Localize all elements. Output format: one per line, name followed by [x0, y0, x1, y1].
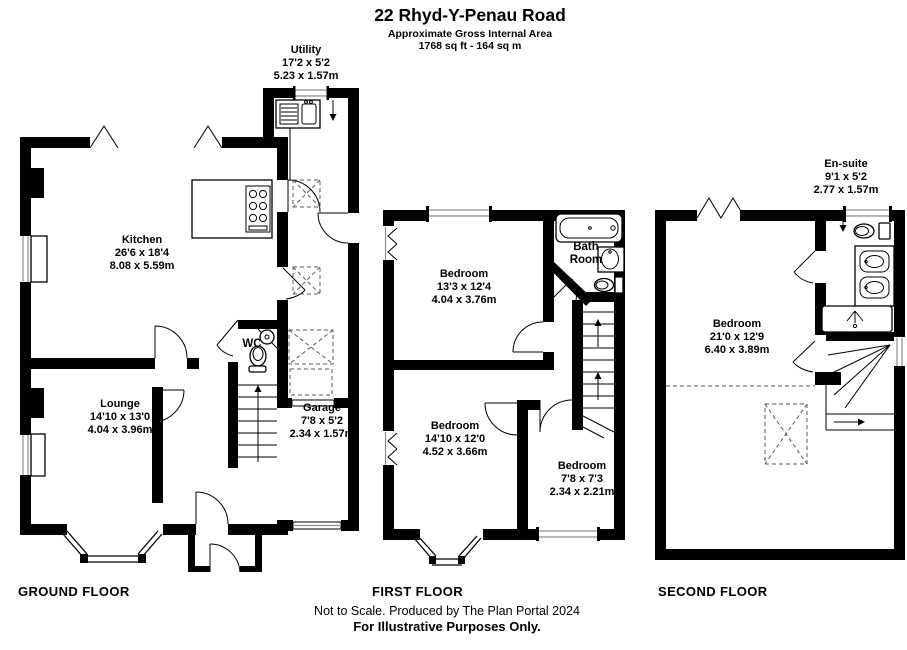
ground-floor-caption: GROUND FLOOR [18, 584, 130, 599]
break-line-icon [697, 198, 745, 218]
bedroom4-label: Bedroom 21'0 x 12'9 6.40 x 3.89m [667, 318, 807, 357]
room-dims-metric: 2.34 x 2.21m [512, 486, 652, 499]
room-dims-metric: 8.08 x 5.59m [72, 260, 212, 273]
room-name: Bedroom [394, 268, 534, 281]
kitchen-label: Kitchen 26'6 x 18'4 8.08 x 5.59m [72, 234, 212, 273]
garage-label: Garage 7'8 x 5'2 2.34 x 1.57m [252, 402, 392, 441]
room-dims-imperial: 26'6 x 18'4 [72, 247, 212, 260]
room-dims-metric: 4.52 x 3.66m [385, 446, 525, 459]
room-dims-imperial: 9'1 x 5'2 [776, 171, 907, 184]
room-name: Lounge [50, 398, 190, 411]
bedroom2-label: Bedroom 14'10 x 12'0 4.52 x 3.66m [385, 420, 525, 459]
window [383, 223, 397, 263]
room-dims-imperial: 21'0 x 12'9 [667, 331, 807, 344]
room-dims-metric: 4.04 x 3.96m [50, 424, 190, 437]
room-dims-imperial: 17'2 x 5'2 [236, 57, 376, 70]
second-floor-plan [655, 198, 905, 560]
window [536, 527, 600, 541]
bathroom-label: Bath Room [556, 241, 616, 267]
first-floor-caption: FIRST FLOOR [372, 584, 463, 599]
lounge-label: Lounge 14'10 x 13'0 4.04 x 3.96m [50, 398, 190, 437]
bay-window [57, 524, 173, 563]
room-dims-metric: 5.23 x 1.57m [236, 70, 376, 83]
page-title: 22 Rhyd-Y-Penau Road [33, 5, 907, 26]
break-line-icon [90, 126, 222, 148]
bedroom1-label: Bedroom 13'3 x 12'4 4.04 x 3.76m [394, 268, 534, 307]
chimney-breast [31, 168, 44, 198]
room-dims-metric: 6.40 x 3.89m [667, 344, 807, 357]
window [843, 206, 892, 222]
porch [188, 535, 262, 572]
toilet-icon [595, 277, 624, 293]
staircase [826, 345, 894, 430]
toilet-icon [854, 223, 890, 239]
room-name: Bedroom [667, 318, 807, 331]
window [20, 233, 47, 285]
bedroom3-label: Bedroom 7'8 x 7'3 2.34 x 2.21m [512, 460, 652, 499]
utility-sink-icon [276, 100, 320, 128]
room-name: En-suite [776, 158, 907, 171]
room-dims-imperial: 14'10 x 13'0 [50, 411, 190, 424]
wc-label: WC [222, 338, 282, 351]
room-name: Bedroom [385, 420, 525, 433]
shower-icon [822, 306, 892, 332]
room-name: Kitchen [72, 234, 212, 247]
window [293, 86, 329, 100]
footer-disclaimer: Not to Scale. Produced by The Plan Porta… [0, 604, 894, 618]
footer-illustrative: For Illustrative Purposes Only. [0, 619, 894, 634]
room-dims-imperial: 13'3 x 12'4 [394, 281, 534, 294]
bathtub-icon [556, 214, 622, 242]
room-name: Bath [556, 241, 616, 254]
room-name: Bedroom [512, 460, 652, 473]
room-dims-imperial: 14'10 x 12'0 [385, 433, 525, 446]
ground-floor-plan [20, 86, 359, 572]
room-name: Utility [236, 44, 376, 57]
utility-label: Utility 17'2 x 5'2 5.23 x 1.57m [236, 44, 376, 83]
ensuite-label: En-suite 9'1 x 5'2 2.77 x 1.57m [776, 158, 907, 197]
room-dims-imperial: 7'8 x 5'2 [252, 415, 392, 428]
dashed-head-height [666, 386, 815, 464]
garage-door [293, 522, 341, 529]
floorplan-page: 22 Rhyd-Y-Penau Road Approximate Gross I… [0, 0, 907, 650]
dashed-storage-box [289, 180, 333, 395]
kitchen-island [192, 180, 272, 238]
window [20, 432, 45, 478]
footer: Not to Scale. Produced by The Plan Porta… [0, 604, 894, 634]
staircase [583, 312, 614, 438]
second-floor-caption: SECOND FLOOR [658, 584, 768, 599]
room-name: Room [556, 254, 616, 267]
page-area: 1768 sq ft - 164 sq m [33, 40, 907, 52]
room-name: WC [222, 338, 282, 351]
room-dims-imperial: 7'8 x 7'3 [512, 473, 652, 486]
bay-window [410, 529, 493, 565]
double-sink-icon [855, 246, 894, 306]
page-subtitle: Approximate Gross Internal Area [33, 28, 907, 40]
window [426, 206, 492, 222]
room-dims-metric: 2.34 x 1.57m [252, 428, 392, 441]
room-name: Garage [252, 402, 392, 415]
room-dims-metric: 2.77 x 1.57m [776, 184, 907, 197]
room-dims-metric: 4.04 x 3.76m [394, 294, 534, 307]
window [894, 334, 905, 369]
chimney-breast [31, 388, 44, 418]
